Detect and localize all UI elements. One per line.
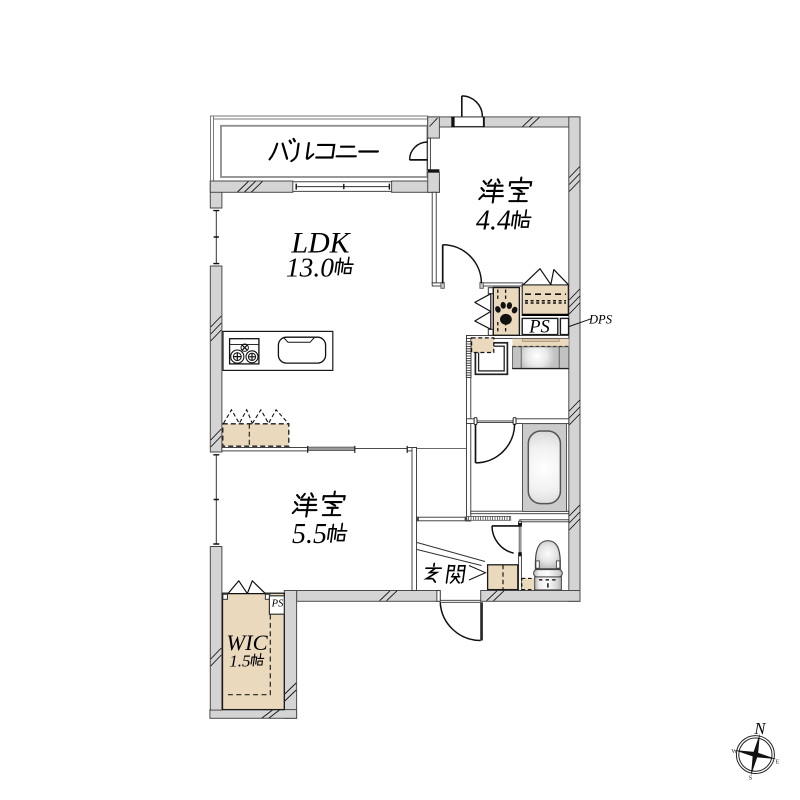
svg-text:4.4: 4.4 <box>476 206 511 237</box>
svg-text:PS: PS <box>528 318 550 338</box>
svg-text:1.5: 1.5 <box>229 652 250 671</box>
svg-text:N: N <box>753 719 766 738</box>
svg-text:S: S <box>749 775 753 782</box>
svg-text:13.0: 13.0 <box>286 252 334 283</box>
svg-text:W: W <box>731 748 738 755</box>
svg-text:PS: PS <box>271 599 284 610</box>
svg-text:5.5: 5.5 <box>292 519 327 550</box>
svg-text:E: E <box>775 759 779 766</box>
svg-text:DPS: DPS <box>588 313 613 327</box>
